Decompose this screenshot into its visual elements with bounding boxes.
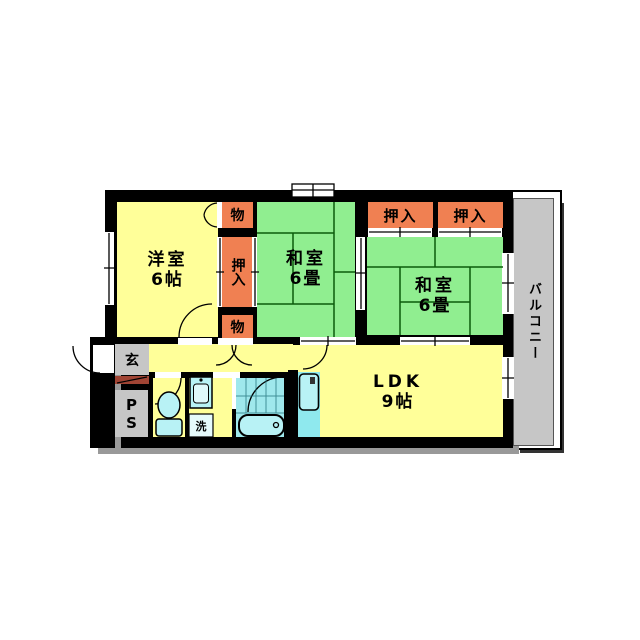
door-gap-bathroom <box>232 378 236 409</box>
washitsu-center-room <box>257 202 355 337</box>
balcony-floor <box>513 198 554 446</box>
slider-gap-oshiire-right-1 <box>368 228 432 237</box>
washitsu-right-room <box>367 237 503 335</box>
storage-top-box <box>222 202 253 228</box>
fusuma-gap-oshiire-west <box>217 237 222 307</box>
window-gap-ldk-balcony <box>502 357 514 399</box>
door-gap-storage-top <box>217 202 222 228</box>
storage-bottom-box <box>222 315 253 338</box>
pipe-space-box <box>115 390 148 437</box>
fusuma-gap-oshiire-east <box>252 237 257 307</box>
oshiire-center-box <box>222 237 253 307</box>
door-gap-entrance <box>93 345 114 373</box>
door-gap-western-south <box>178 338 212 345</box>
window-gap-western-left <box>104 232 114 305</box>
kitchen-counter <box>298 372 320 437</box>
oshiire-right-2-box <box>438 202 503 228</box>
slider-gap-washitsu-right-ldk <box>400 337 470 345</box>
slider-gap-washitsu-center-ldk <box>300 337 356 345</box>
ldk-room <box>293 345 503 437</box>
entrance-step <box>115 376 149 384</box>
window-gap-washitsu-balcony <box>502 253 514 314</box>
fusuma-gap-washitsu-divider <box>356 237 365 310</box>
bathroom <box>236 378 284 437</box>
slider-gap-oshiire-right-2 <box>438 228 502 237</box>
corridor <box>149 344 293 372</box>
entrance-floor <box>115 344 149 375</box>
door-gap-toilet <box>155 372 181 378</box>
western-room <box>117 202 218 337</box>
door-gap-storage-bottom <box>218 338 253 345</box>
floor-plan: 洋室 6帖 和室 6畳 和室 6畳 LDK 9帖 物 押入 物 押入 押入 バル… <box>0 0 640 640</box>
washroom <box>189 378 232 437</box>
kitchen-partition-wall <box>288 370 298 437</box>
oshiire-right-1-box <box>368 202 433 228</box>
toilet-room <box>153 378 185 437</box>
